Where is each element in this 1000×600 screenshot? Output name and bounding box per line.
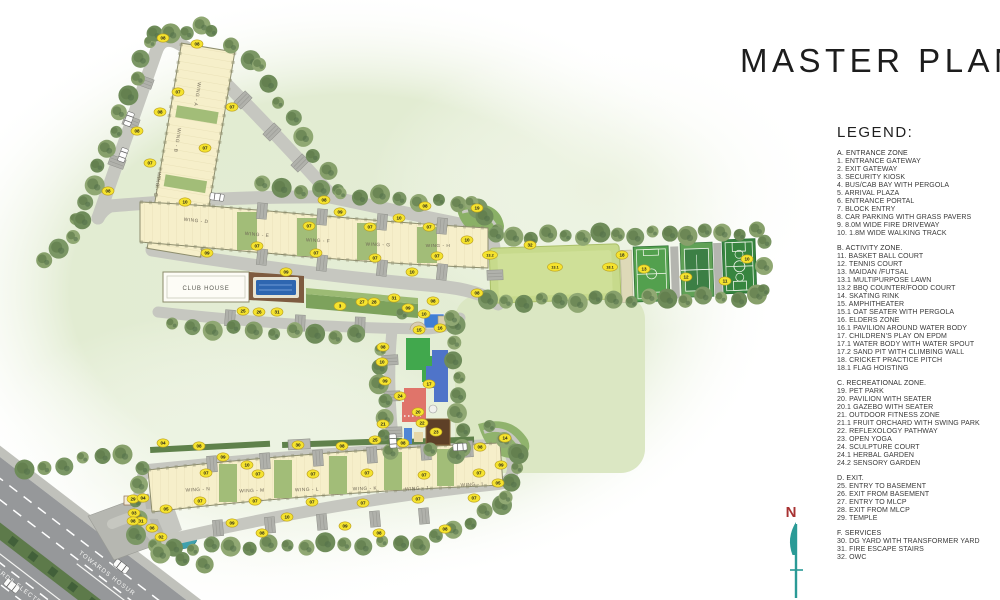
tree-icon (55, 457, 73, 475)
tree-icon (456, 423, 470, 437)
block-entry-paver (316, 209, 327, 226)
legend-item: 21.1 FRUIT ORCHARD WITH SWING PARK (837, 420, 999, 428)
tree-icon (14, 460, 34, 480)
plan-marker-label: 31 (391, 296, 397, 301)
tree-icon (484, 420, 496, 432)
tree-icon (731, 292, 747, 308)
sand-pit (414, 432, 423, 442)
plan-marker: 09 (495, 461, 507, 469)
block-entry-paver (376, 214, 387, 231)
plan-marker: 28 (368, 298, 380, 306)
legend-section-header: D. EXIT. (837, 475, 999, 483)
plan-marker: 07 (226, 103, 238, 111)
plan-marker: 22 (416, 419, 428, 427)
tree-icon (282, 540, 294, 552)
legend-item: 17.2 SAND PIT WITH CLIMBING WALL (837, 349, 999, 357)
plan-marker: 07 (252, 470, 264, 478)
legend-item: 24.2 SENSORY GARDEN (837, 460, 999, 468)
tree-icon (499, 490, 513, 504)
legend-section-header: B. ACTIVITY ZONE. (837, 245, 999, 253)
legend-section: C. RECREATIONAL ZONE.19. PET PARK20. PAV… (837, 380, 999, 468)
plan-marker: 23 (430, 428, 442, 436)
legend-item: 7. BLOCK ENTRY (837, 206, 999, 214)
tree-icon (77, 452, 89, 464)
wing-label: WING - I (460, 481, 483, 488)
plan-marker: 13.2 (483, 251, 498, 259)
block-entry-paver (316, 514, 327, 531)
plan-marker-label: 09 (342, 524, 348, 529)
legend-item: 19. PET PARK (837, 388, 999, 396)
tree-icon (77, 194, 93, 210)
play-epdm-pink (402, 388, 426, 422)
plan-marker: 08 (127, 517, 139, 525)
plan-marker: 31 (388, 294, 400, 302)
plan-marker: 08 (318, 196, 330, 204)
tree-icon (268, 328, 280, 340)
tree-icon (252, 58, 266, 72)
plan-marker-label: 07 (426, 225, 432, 230)
plan-marker-label: 08 (474, 291, 480, 296)
legend-item: 4. BUS/CAB BAY WITH PERGOLA (837, 182, 999, 190)
plan-marker: 07 (144, 159, 156, 167)
tree-icon (677, 226, 697, 246)
plan-marker: 09 (217, 453, 229, 461)
north-indicator: N (786, 504, 803, 598)
car-icon (389, 434, 397, 448)
plan-marker: 07 (412, 495, 424, 503)
legend-section-header: A. ENTRANCE ZONE (837, 150, 999, 158)
tree-icon (66, 230, 80, 244)
plan-marker-label: 05 (495, 481, 501, 486)
legend-item: 15.1 OAT SEATER WITH PERGOLA (837, 309, 999, 317)
plan-marker-label: 07 (147, 161, 153, 166)
plan-marker-label: 08 (134, 129, 140, 134)
plan-marker-label: 10 (396, 216, 402, 221)
plan-marker: 07 (431, 252, 443, 260)
tree-icon (410, 535, 430, 555)
plan-marker-label: 07 (197, 499, 203, 504)
tree-icon (95, 448, 111, 464)
tree-icon (286, 110, 302, 126)
plan-marker: 09 (226, 519, 238, 527)
plan-marker-label: 07 (175, 90, 181, 95)
gazebo (429, 405, 437, 413)
legend-item: 13.2 BBQ COUNTER/FOOD COURT (837, 285, 999, 293)
legend-section: D. EXIT.25. ENTRY TO BASEMENT26. EXIT FR… (837, 475, 999, 523)
tree-icon (370, 184, 390, 204)
north-arrow-flag (790, 522, 796, 555)
tree-icon (392, 192, 406, 206)
plan-marker: 05 (492, 479, 504, 487)
plan-marker-label: 07 (306, 224, 312, 229)
tree-icon (312, 180, 330, 198)
plan-marker: 14 (499, 434, 511, 442)
plan-marker: 17 (423, 380, 435, 388)
plan-marker: 08 (471, 289, 483, 297)
plan-marker: 08 (193, 442, 205, 450)
plan-marker: 20 (412, 408, 424, 416)
plan-marker-label: 07 (415, 497, 421, 502)
tree-icon (536, 293, 548, 305)
plan-marker-label: 17 (426, 382, 432, 387)
legend-item: 5. ARRIVAL PLAZA (837, 190, 999, 198)
tree-icon (254, 176, 270, 192)
plan-marker-label: 05 (163, 507, 169, 512)
plan-marker: 08 (419, 202, 431, 210)
tree-icon (539, 225, 557, 243)
plan-marker-label: 11 (723, 279, 728, 284)
tree-icon (347, 325, 365, 343)
plan-marker-label: 04 (160, 441, 166, 446)
plan-marker: 08 (439, 525, 451, 533)
legend-item: 15. AMPHITHEATER (837, 301, 999, 309)
plan-marker-label: 06 (149, 526, 155, 531)
plan-marker-label: 09 (405, 306, 411, 311)
tree-icon (657, 289, 677, 309)
legend-item: 11. BASKET BALL COURT (837, 253, 999, 261)
legend-item: 32. OWC (837, 554, 999, 562)
plan-marker-label: 10 (744, 257, 750, 262)
plan-marker: 07 (310, 249, 322, 257)
plan-marker: 18 (616, 251, 628, 259)
plan-marker: 08 (336, 442, 348, 450)
plan-marker-label: 07 (203, 471, 209, 476)
plan-marker: 13.1 (548, 263, 563, 271)
legend-item: 1. ENTRANCE GATEWAY (837, 158, 999, 166)
plan-marker-label: 32 (527, 243, 533, 248)
tree-icon (444, 310, 460, 326)
plan-marker: 07 (468, 494, 480, 502)
legend-item: 17.1 WATER BODY WITH WATER SPOUT (837, 341, 999, 349)
legend: LEGEND: A. ENTRANCE ZONE1. ENTRANCE GATE… (837, 124, 999, 569)
block-entry-paver (212, 520, 223, 537)
legend-item: 10. 1.8M WIDE WALKING TRACK (837, 230, 999, 238)
plan-marker-label: 08 (194, 42, 200, 47)
tree-icon (447, 336, 461, 350)
tree-icon (73, 211, 91, 229)
tree-icon (453, 372, 465, 384)
plan-marker-label: 15 (416, 328, 422, 333)
tree-icon (465, 518, 477, 530)
legend-item: 3. SECURITY KIOSK (837, 174, 999, 182)
tree-icon (49, 239, 69, 259)
plan-marker: 07 (303, 222, 315, 230)
plan-marker-label: 08 (259, 531, 265, 536)
tree-icon (272, 178, 292, 198)
plan-marker: 25 (369, 436, 381, 444)
legend-item: 9. 8.0M WIDE FIRE DRIVEWAY (837, 222, 999, 230)
legend-item: 12. TENNIS COURT (837, 261, 999, 269)
tree-icon (245, 321, 263, 339)
plan-marker: 07 (249, 497, 261, 505)
tree-icon (315, 532, 335, 552)
tree-icon (98, 140, 116, 158)
plan-marker-label: 07 (360, 501, 366, 506)
wing-label: WING - K (353, 486, 378, 493)
plan-marker-label: 13 (641, 267, 647, 272)
legend-item: 13. MAIDAN /FUTSAL (837, 269, 999, 277)
legend-item: 30. DG YARD WITH TRANSFORMER YARD (837, 538, 999, 546)
plan-marker-label: 30 (295, 443, 301, 448)
legend-item: 24. SCULPTURE COURT (837, 444, 999, 452)
plan-marker: 08 (373, 529, 385, 537)
tree-icon (36, 252, 52, 268)
plan-marker-label: 08 (477, 445, 483, 450)
tree-icon (305, 324, 325, 344)
tree-icon (223, 38, 239, 54)
plan-marker-label: 08 (422, 204, 428, 209)
tree-icon (713, 224, 731, 242)
plan-marker: 07 (194, 497, 206, 505)
plan-marker-label: 09 (220, 455, 226, 460)
tree-icon (647, 226, 659, 238)
plan-marker-label: 25 (372, 438, 378, 443)
plan-marker: 10 (461, 236, 473, 244)
block-entry-paver (436, 264, 448, 281)
legend-section: A. ENTRANCE ZONE1. ENTRANCE GATEWAY2. EX… (837, 150, 999, 238)
plan-marker: 10 (241, 461, 253, 469)
plan-marker-label: 10 (421, 312, 427, 317)
legend-item: 6. ENTRANCE PORTAL (837, 198, 999, 206)
plan-marker: 07 (357, 499, 369, 507)
wing-label: WING - H (426, 243, 451, 249)
wing-label: WING - J (405, 485, 429, 492)
legend-item: 17. CHILDREN'S PLAY ON EPDM (837, 333, 999, 341)
block-entry-paver (256, 249, 268, 266)
plan-marker: 24 (394, 392, 406, 400)
tree-icon (552, 293, 568, 309)
plan-marker: 10 (376, 358, 388, 366)
plan-marker: 05 (160, 505, 172, 513)
plan-marker: 08 (427, 297, 439, 305)
wing-label: WING - M (239, 488, 265, 495)
tree-icon (111, 104, 127, 120)
plan-marker: 12 (680, 273, 692, 281)
plan-marker: 08 (131, 127, 143, 135)
wing-label: WING - G (365, 242, 390, 249)
tree-icon (393, 535, 409, 551)
plan-marker-label: 08 (430, 299, 436, 304)
plan-marker: 21 (377, 420, 389, 428)
tree-icon (131, 72, 145, 86)
legend-item: 8. CAR PARKING WITH GRASS PAVERS (837, 214, 999, 222)
tree-icon (605, 291, 623, 309)
plan-marker-label: 24 (397, 394, 403, 399)
tree-icon (176, 552, 190, 566)
tree-icon (205, 25, 217, 37)
plan-marker: 07 (364, 223, 376, 231)
tree-icon (204, 536, 220, 552)
plan-marker: 07 (473, 469, 485, 477)
plan-marker-label: 23 (433, 430, 439, 435)
plan-marker: 08 (102, 187, 114, 195)
plan-marker: 07 (200, 469, 212, 477)
tree-icon (450, 196, 466, 212)
plan-marker-label: 08 (376, 531, 382, 536)
plan-marker-label: 07 (372, 256, 378, 261)
legend-item: 18. CRICKET PRACTICE PITCH (837, 357, 999, 365)
wing-label: WING - L (295, 487, 319, 494)
tree-icon (203, 321, 223, 341)
plan-marker: 11 (719, 277, 731, 285)
plan-marker-label: 12 (683, 275, 689, 280)
plan-marker: 07 (306, 498, 318, 506)
tree-icon (85, 175, 105, 195)
tree-icon (503, 227, 523, 247)
tree-icon (590, 223, 610, 243)
plan-marker-label: 08 (160, 36, 166, 41)
plan-marker-label: 31 (274, 310, 280, 315)
tree-icon (755, 257, 773, 275)
plan-marker: 09 (201, 249, 213, 257)
tree-icon (243, 542, 257, 556)
plan-marker-label: 3 (339, 304, 342, 309)
legend-title: LEGEND: (837, 124, 999, 141)
block-entry-paver (312, 450, 323, 467)
tree-icon (641, 289, 657, 305)
block-entry-paver (418, 508, 429, 525)
tree-icon (477, 503, 493, 519)
plan-marker-label: 09 (498, 463, 504, 468)
tree-icon (337, 537, 351, 551)
plan-marker-label: 08 (321, 198, 327, 203)
plan-marker: 06 (146, 524, 158, 532)
tree-icon (433, 194, 445, 206)
block-entry-paver (366, 447, 377, 464)
tree-icon (113, 444, 133, 464)
tree-icon (715, 292, 727, 304)
plan-marker: 04 (137, 494, 149, 502)
tree-icon (515, 295, 533, 313)
plan-marker-label: 27 (359, 300, 365, 305)
block-entry-paver (436, 218, 447, 235)
tree-icon (184, 319, 200, 335)
plan-marker-label: 22 (419, 421, 425, 426)
tree-icon (450, 387, 466, 403)
landscape-gap (329, 456, 347, 494)
tree-icon (135, 461, 149, 475)
tree-icon (352, 190, 368, 206)
tree-icon (757, 235, 771, 249)
legend-item: 27. ENTRY TO MLCP (837, 499, 999, 507)
tree-icon (354, 538, 372, 556)
plan-marker: 03 (128, 509, 140, 517)
plan-marker-label: 07 (476, 471, 482, 476)
plan-marker: 25 (237, 307, 249, 315)
plan-marker: 30 (292, 441, 304, 449)
plan-marker: 09 (379, 377, 391, 385)
tree-icon (294, 185, 308, 199)
tree-icon (694, 287, 712, 305)
block-entry-paver (369, 511, 380, 528)
plan-marker-label: 28 (371, 300, 377, 305)
legend-body: A. ENTRANCE ZONE1. ENTRANCE GATEWAY2. EX… (837, 150, 999, 562)
tree-icon (335, 187, 347, 199)
plan-marker-label: 07 (255, 472, 261, 477)
plan-marker-label: 08 (400, 441, 406, 446)
tree-icon (698, 224, 712, 238)
plan-marker: 13 (638, 265, 650, 273)
plan-marker-label: 09 (283, 270, 289, 275)
plan-marker: 08 (191, 40, 203, 48)
tree-icon (423, 443, 437, 457)
legend-item: 2. EXIT GATEWAY (837, 166, 999, 174)
plan-marker-label: 13.1 (551, 266, 558, 270)
legend-item: 16.1 PAVILION AROUND WATER BODY (837, 325, 999, 333)
tree-icon (221, 537, 241, 557)
plan-marker-label: 29 (130, 497, 136, 502)
club-house-label: CLUB HOUSE (182, 286, 229, 292)
plan-marker: 07 (369, 254, 381, 262)
tree-icon (447, 403, 467, 423)
plan-marker-label: 08 (380, 345, 386, 350)
plan-marker: 08 (157, 34, 169, 42)
block-entry-paver (376, 260, 388, 277)
plan-marker-label: 09 (382, 379, 388, 384)
tree-icon (126, 525, 146, 545)
legend-item: 16. ELDERS ZONE (837, 317, 999, 325)
legend-item: 13.1 MULTIPURPOSE LAWN (837, 277, 999, 285)
tree-icon (734, 229, 746, 241)
plan-marker: 07 (199, 144, 211, 152)
plan-marker-label: 07 (252, 499, 258, 504)
plan-marker-label: 09 (229, 521, 235, 526)
plan-marker: 09 (402, 304, 414, 312)
tree-icon (575, 230, 591, 246)
legend-item: 26. EXIT FROM BASEMENT (837, 491, 999, 499)
plan-marker: 09 (339, 522, 351, 530)
plan-marker: 32 (524, 241, 536, 249)
legend-item: 29. TEMPLE (837, 515, 999, 523)
tree-icon (320, 162, 338, 180)
tree-icon (378, 394, 392, 408)
legend-item: 22. REFLEXOLOGY PATHWAY (837, 428, 999, 436)
plan-marker-label: 07 (434, 254, 440, 259)
plan-marker-label: 07 (367, 225, 373, 230)
page-title: MASTER PLAN (740, 42, 1000, 80)
tree-icon (560, 230, 572, 242)
tree-icon (568, 293, 588, 313)
tree-icon (328, 330, 342, 344)
plan-marker: 19 (471, 204, 483, 212)
plan-marker: 08 (474, 443, 486, 451)
plan-marker-label: 02 (158, 535, 164, 540)
plan-marker-label: 10 (379, 360, 385, 365)
plan-marker: 10 (393, 214, 405, 222)
tree-icon (293, 127, 313, 147)
plan-marker-label: 10 (244, 463, 250, 468)
tree-icon (589, 291, 603, 305)
tree-icon (226, 320, 240, 334)
plan-marker-label: 10 (284, 515, 290, 520)
plan-marker-label: 14 (502, 436, 508, 441)
plan-marker-label: 07 (364, 471, 370, 476)
plan-marker-label: 08 (196, 444, 202, 449)
plan-marker-label: 07 (202, 146, 208, 151)
legend-item: 23. OPEN YOGA (837, 436, 999, 444)
plan-marker-label: 25 (240, 309, 246, 314)
plan-marker: 07 (172, 88, 184, 96)
tree-icon (499, 295, 513, 309)
tree-icon (509, 444, 529, 464)
plan-marker: 10 (406, 268, 418, 276)
swimming-pool (256, 280, 296, 295)
plan-marker: 15 (413, 326, 425, 334)
plan-marker: 08 (377, 343, 389, 351)
plan-marker: 07 (307, 470, 319, 478)
tree-icon (758, 284, 770, 296)
legend-item: 31. FIRE ESCAPE STAIRS (837, 546, 999, 554)
